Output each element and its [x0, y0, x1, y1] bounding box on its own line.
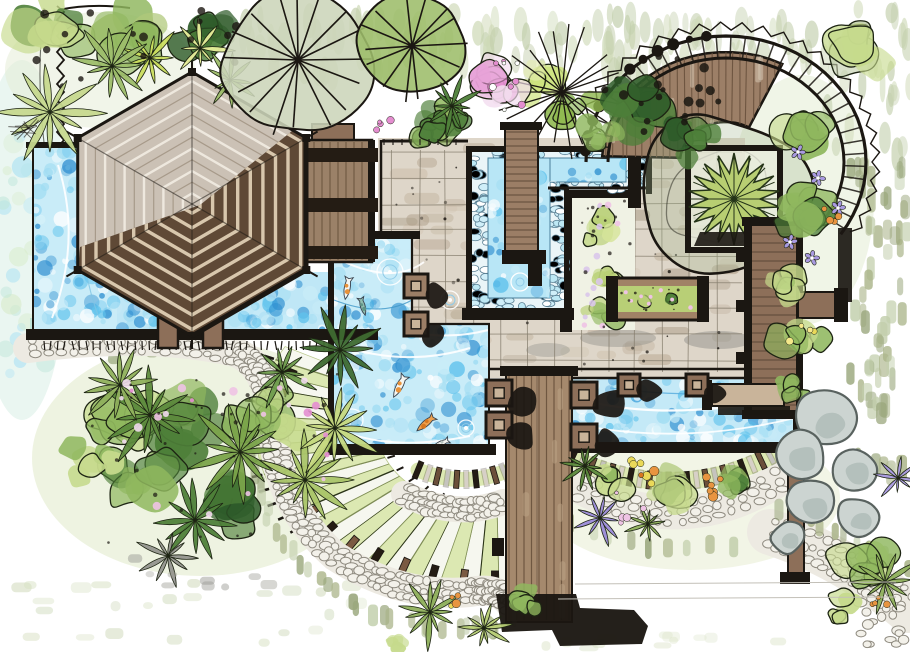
deck-seat: [486, 380, 512, 406]
garden-plan-drawing: [0, 0, 910, 652]
deck-seat: [404, 274, 428, 298]
landscape-plan-canvas: [0, 0, 910, 652]
deck-seat: [618, 374, 640, 396]
deck-seat: [571, 424, 597, 450]
